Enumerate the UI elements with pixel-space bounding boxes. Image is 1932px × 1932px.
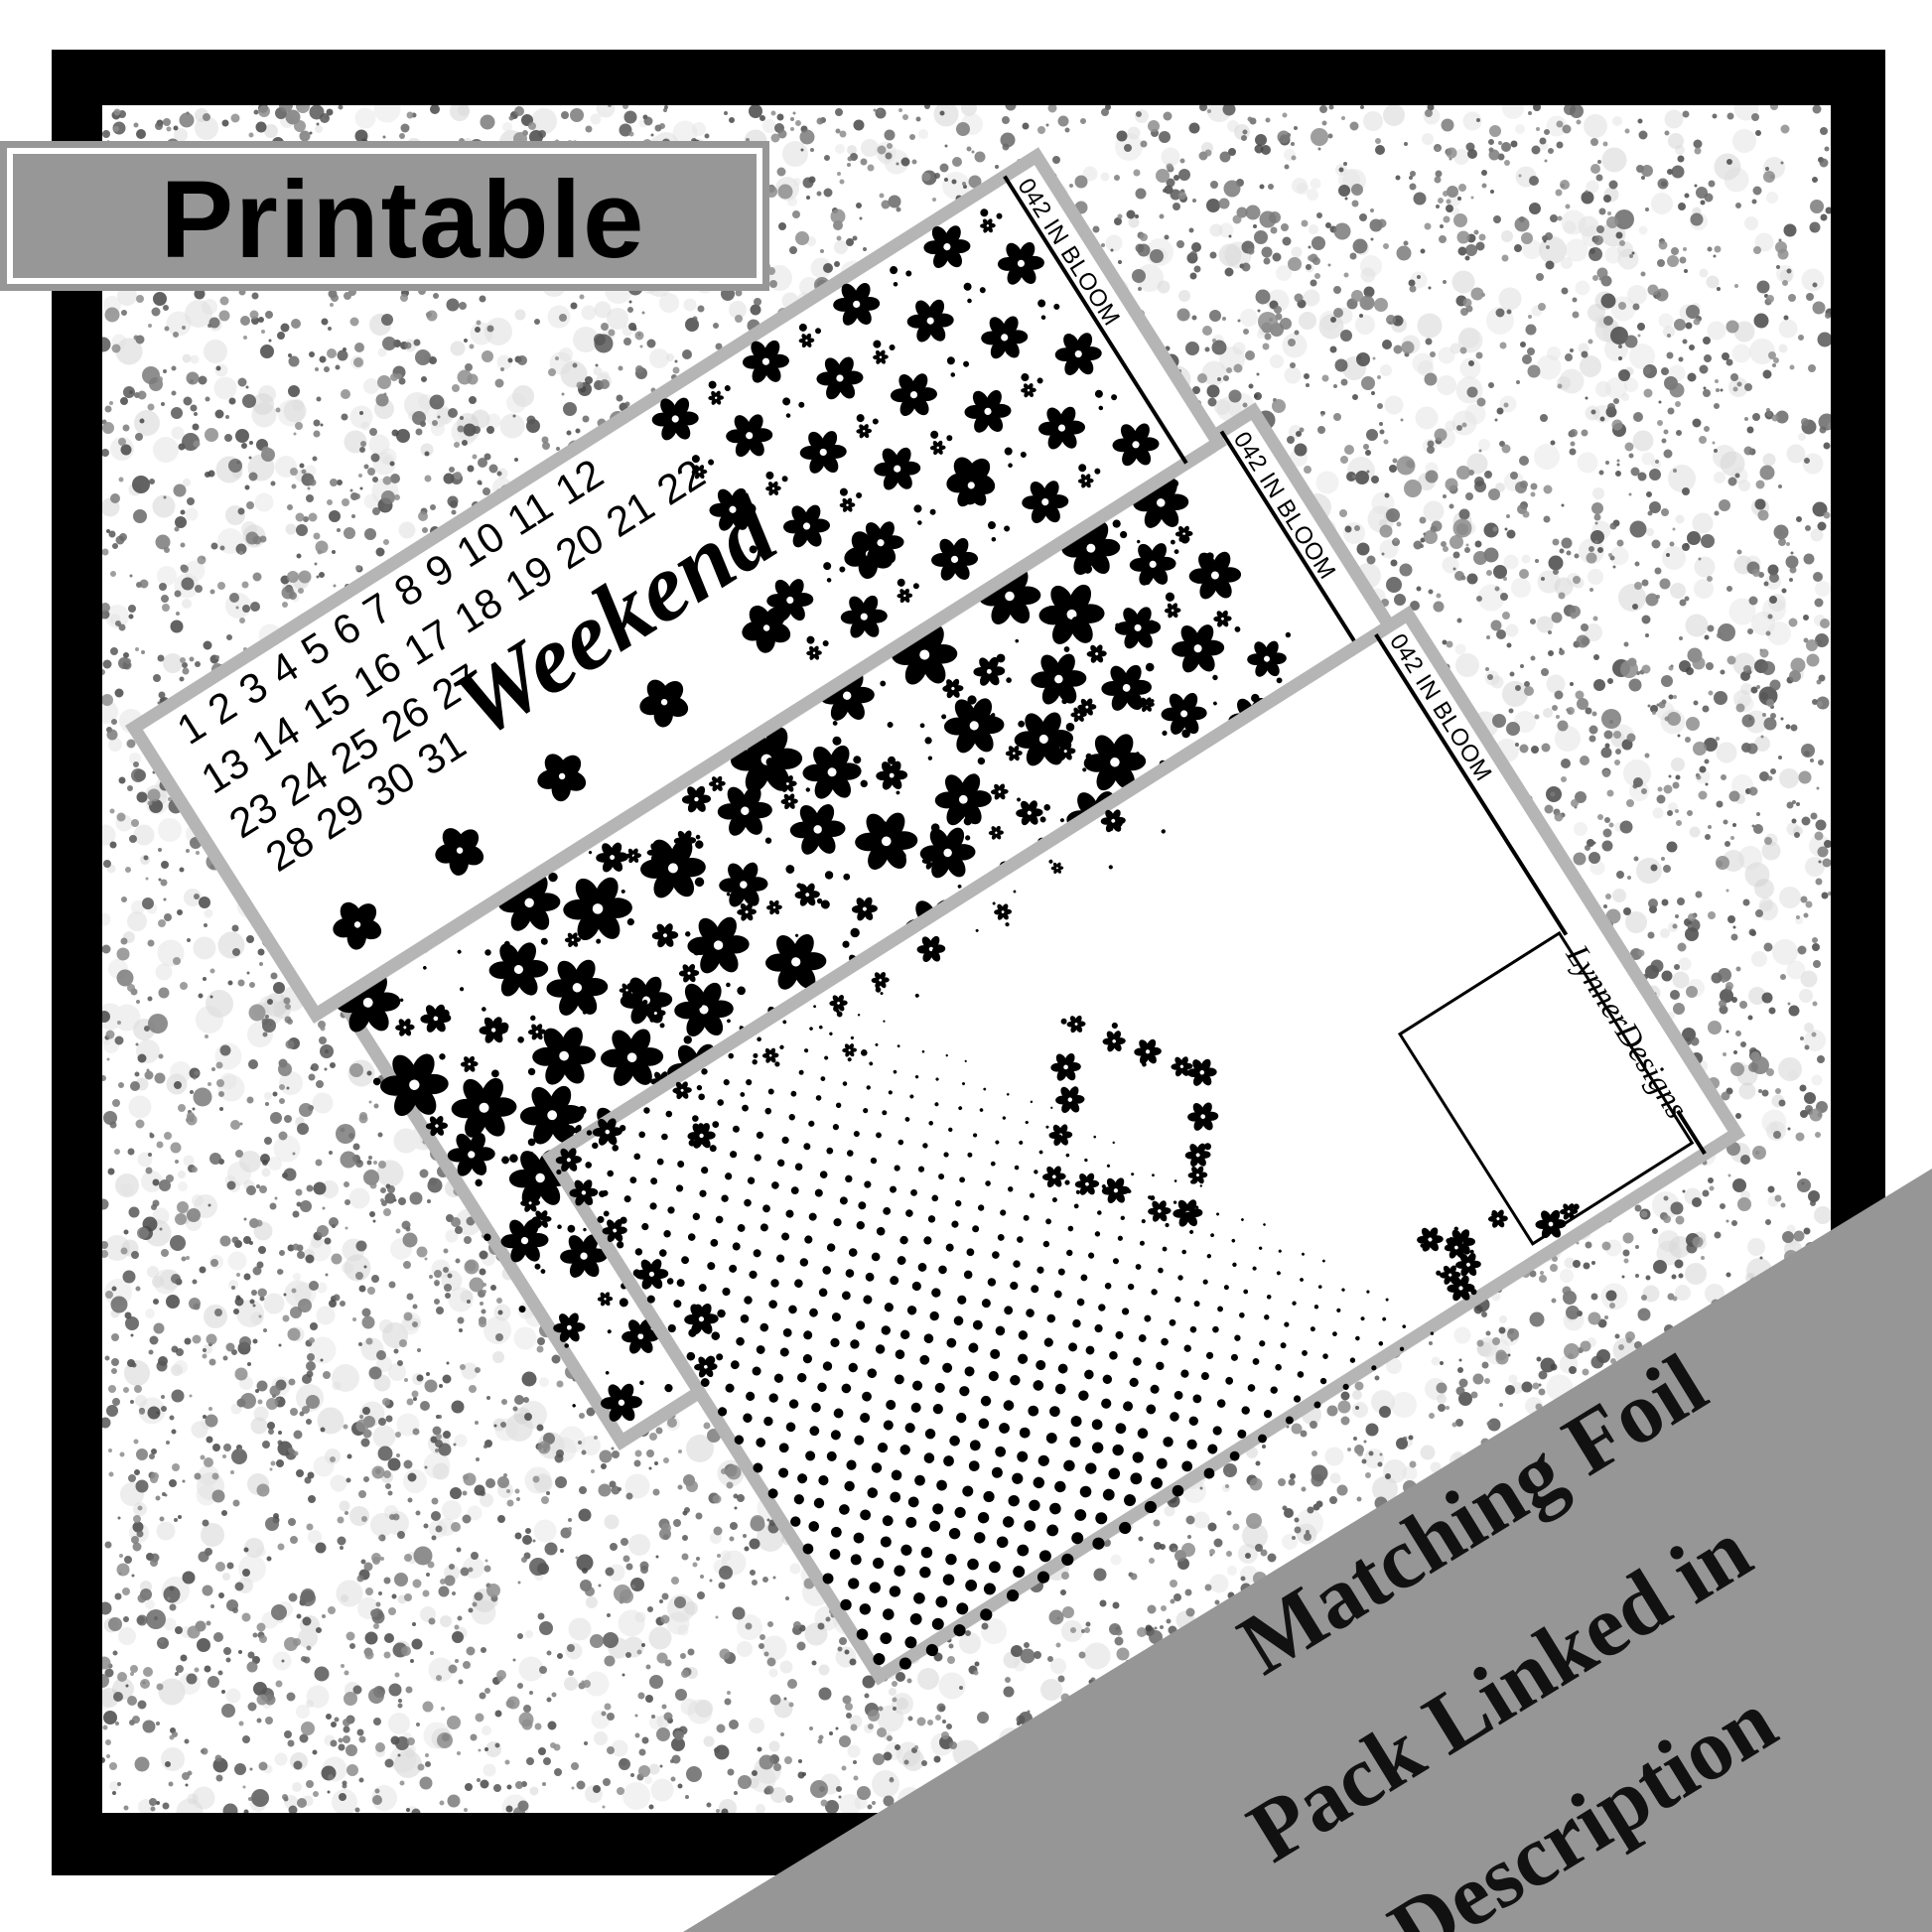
svg-text:Printable: Printable xyxy=(161,159,646,281)
